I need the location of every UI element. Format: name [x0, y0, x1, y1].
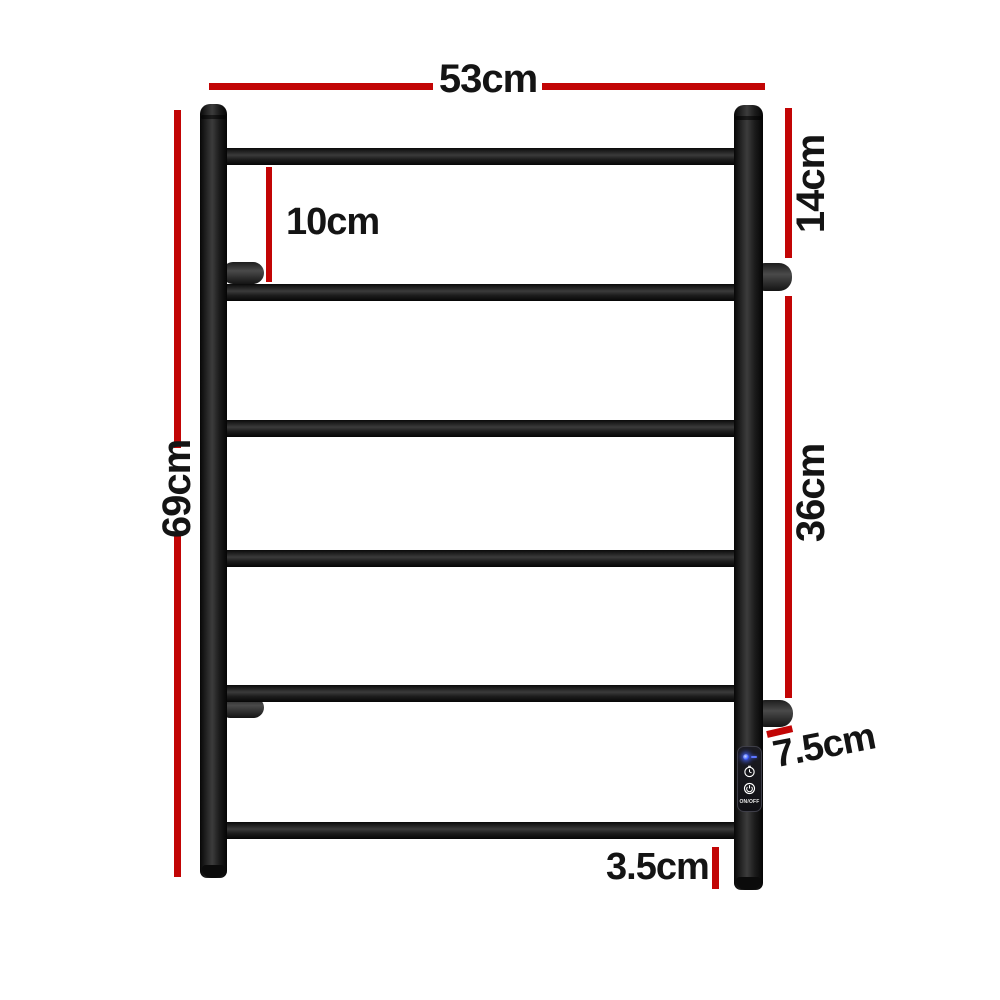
dim-line-rung-gap	[266, 167, 272, 282]
dim-label-height: 69cm	[157, 424, 197, 554]
dim-label-bottom-stub: 3.5cm	[606, 848, 709, 886]
right-post-foot	[736, 877, 761, 890]
rung-1	[210, 148, 755, 165]
dim-label-width: 53cm	[428, 59, 548, 99]
product-diagram: ON/OFF 53cm 69cm 14cm 36cm 10cm 7.5cm 3.…	[0, 0, 1000, 1000]
wall-bracket-upper-left	[222, 262, 264, 284]
onoff-label: ON/OFF	[739, 799, 759, 805]
led-dash-icon	[751, 756, 757, 758]
left-post-foot	[202, 865, 225, 878]
dim-label-rung-gap: 10cm	[286, 203, 379, 241]
dim-line-height-lower	[174, 532, 181, 877]
dim-line-bottom-stub	[712, 847, 719, 889]
led-dot-icon	[743, 754, 749, 760]
led-indicator	[743, 754, 757, 761]
dim-label-top-section: 14cm	[791, 119, 831, 249]
left-post	[200, 104, 227, 878]
power-icon	[743, 782, 756, 795]
rung-6	[210, 822, 755, 839]
rung-3	[210, 420, 755, 437]
rung-2	[210, 284, 755, 301]
left-post-cap	[201, 115, 226, 119]
timer-icon	[743, 765, 756, 778]
control-panel: ON/OFF	[737, 746, 762, 812]
dim-label-mid-section: 36cm	[791, 428, 831, 558]
dim-line-width-right	[542, 83, 765, 90]
rung-5	[210, 685, 755, 702]
rung-4	[210, 550, 755, 567]
dim-line-height-upper	[174, 110, 181, 448]
dim-line-width-left	[209, 83, 433, 90]
right-post-cap	[735, 116, 762, 120]
